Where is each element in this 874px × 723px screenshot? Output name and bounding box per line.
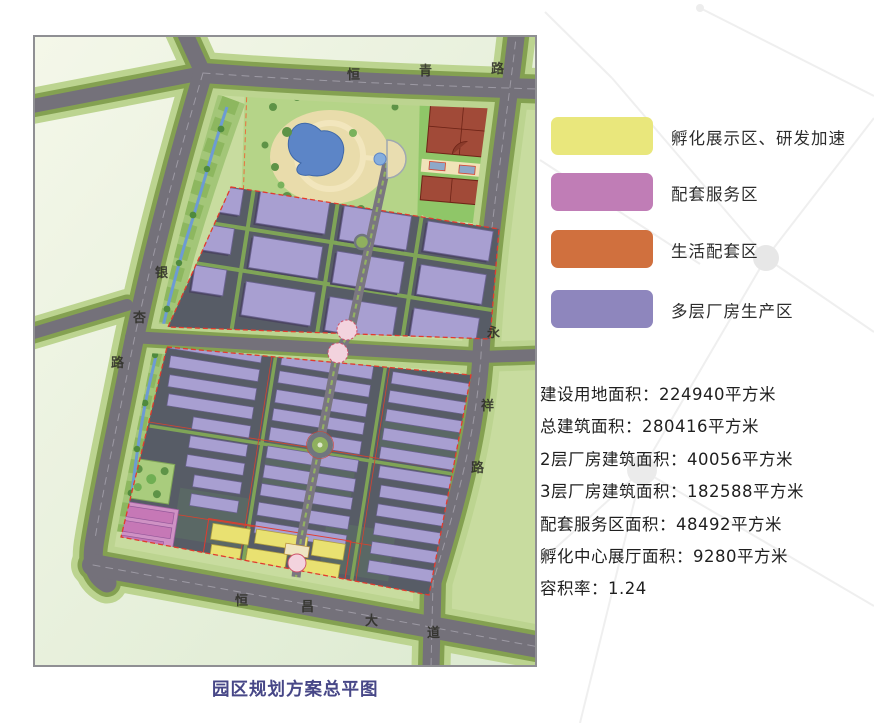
legend-label-support-services: 配套服务区 (671, 181, 759, 205)
legend-label-incubation: 孵化展示区、研发加速 (671, 125, 846, 149)
roundabout (307, 432, 334, 459)
site-plan-svg: 恒 青 路 银 杏 路 永 祥 路 恒 昌 大 道 (35, 37, 535, 665)
site-statistics: 建设用地面积：224940平方米 总建筑面积：280416平方米 2层厂房建筑面… (540, 379, 804, 606)
legend-swatch-support-services (551, 173, 653, 211)
map-caption: 园区规划方案总平图 (212, 676, 379, 701)
stat-3-storey-factory-area: 3层厂房建筑面积：182588平方米 (540, 476, 804, 508)
legend-label-life-support: 生活配套区 (671, 238, 759, 262)
gateway-plaza (328, 343, 348, 363)
network-node (696, 4, 704, 12)
legend-swatch-incubation (551, 117, 653, 155)
stat-construction-land-area: 建设用地面积：224940平方米 (540, 379, 804, 411)
axis-node (355, 235, 369, 249)
stat-total-floor-area: 总建筑面积：280416平方米 (540, 411, 804, 443)
legend-label-factory: 多层厂房生产区 (671, 298, 794, 322)
stat-plot-ratio: 容积率：1.24 (540, 573, 804, 605)
stat-support-services-area: 配套服务区面积：48492平方米 (540, 509, 804, 541)
site-plan-map: 恒 青 路 银 杏 路 永 祥 路 恒 昌 大 道 (33, 35, 537, 667)
legend-swatch-factory (551, 290, 653, 328)
legend-swatch-life-support (551, 230, 653, 268)
stat-2-storey-factory-area: 2层厂房建筑面积：40056平方米 (540, 444, 804, 476)
gateway-plaza (337, 320, 357, 340)
stat-incubation-hall-area: 孵化中心展厅面积：9280平方米 (540, 541, 804, 573)
